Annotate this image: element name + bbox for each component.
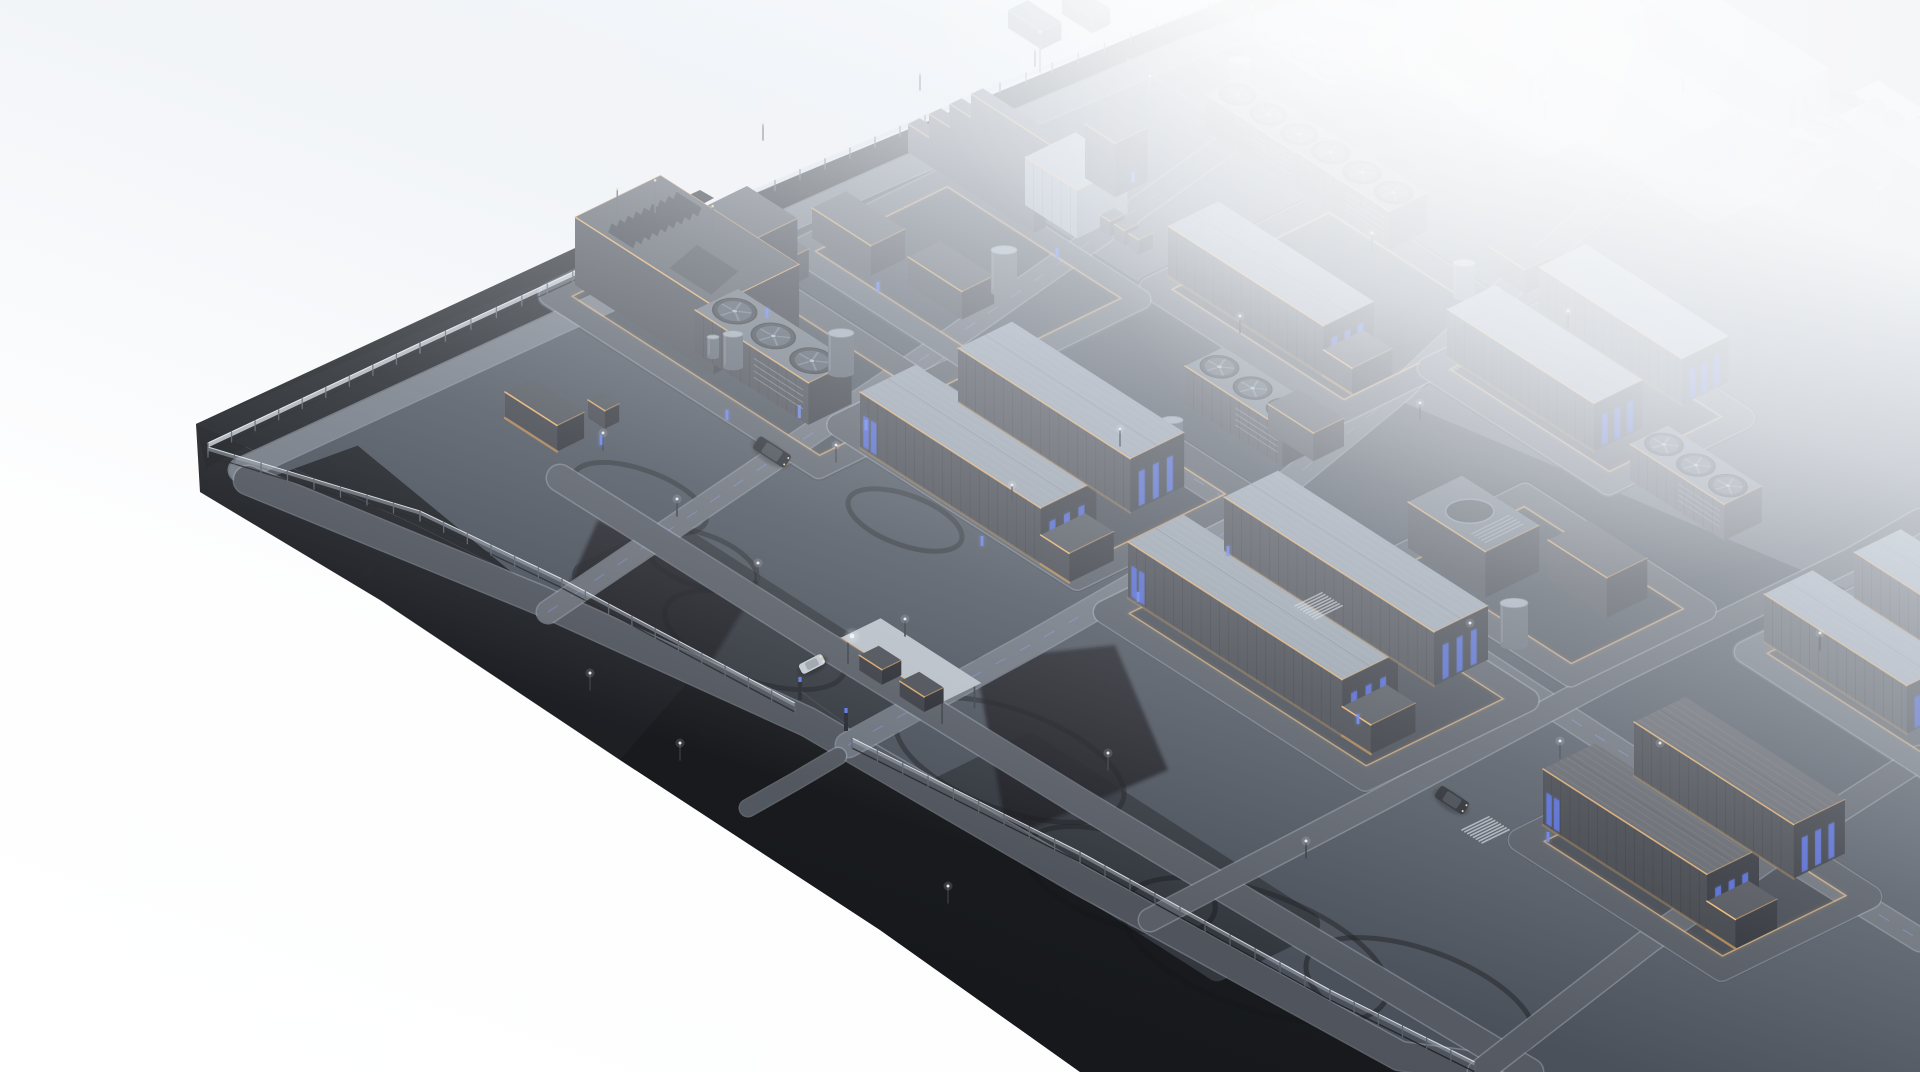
haze-overlay xyxy=(0,0,1920,1072)
aerial-render-canvas xyxy=(0,0,1920,1072)
facility-aerial-scene xyxy=(0,0,1920,1072)
